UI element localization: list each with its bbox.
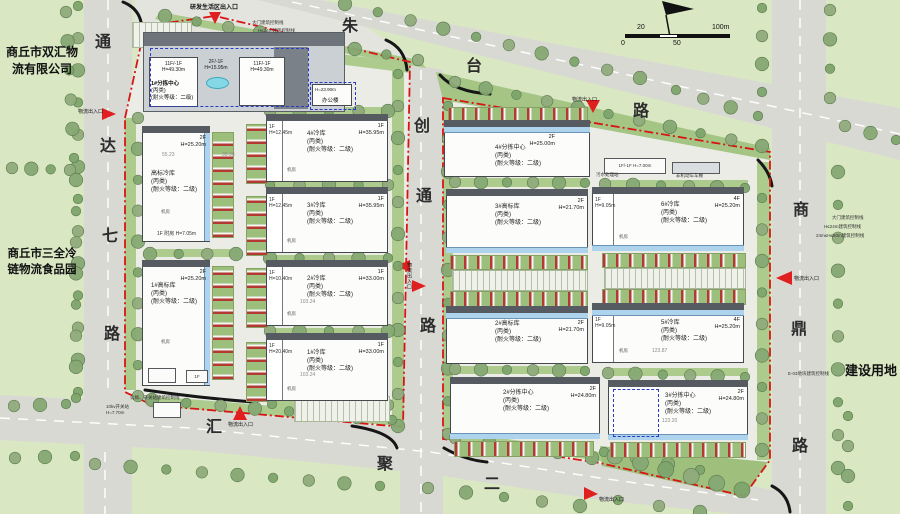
roof-shadow <box>266 333 388 340</box>
dimension: 123.87 <box>652 348 667 354</box>
loading-dock-apron <box>246 124 268 184</box>
roof-shadow <box>266 187 388 194</box>
building-gaobiao-cold-storage: 2FH=25.20m 高标冷库 (丙类) (耐火等级：二级) 机房 1F 附房 … <box>142 126 210 242</box>
building-2-cold-storage: 1FH=10.40m 1FH=33.00m 2#冷库 (丙类) (耐火等级：二级… <box>266 260 388 326</box>
scale-label-100m: 100m <box>712 24 730 31</box>
loading-dock-apron <box>450 255 588 270</box>
road-name-shangding: 路 <box>792 432 808 456</box>
tower-floors: 11F/-1F <box>165 61 182 67</box>
tower-height: H=49.30m <box>250 67 273 73</box>
substation-label: 10kv开关站 H=7.70m <box>106 404 129 415</box>
phase-boundary <box>613 389 659 437</box>
bike-shed-label: 非机动车车棚 <box>676 173 703 179</box>
note-h24-ctrl: H≤24m建筑控制线 <box>824 224 861 230</box>
entrance-logistics-north: 物流出入口 <box>572 96 597 103</box>
building-label: 2#高标库 (丙类) (耐火等级：二级) <box>495 321 541 344</box>
office-height: H=23.90m <box>315 87 336 92</box>
scale-bar-segment <box>625 34 659 38</box>
dock-canopy <box>446 313 588 319</box>
machine-room-label: 机房 <box>287 167 296 173</box>
entrance-logistics-west: 物流出入口 <box>78 108 103 115</box>
road-name-tongda: 通 <box>95 28 111 52</box>
building-3-gaobiao-warehouse: 2FH=21.70m 3#高标库 (丙类) (耐火等级：二级) <box>446 189 588 253</box>
loading-dock-apron <box>212 132 234 238</box>
building-4-sorting-center: 2FH=25.00m 4#分拣中心 (丙类) (耐火等级：二级) <box>444 120 590 177</box>
roof-shadow <box>450 377 600 384</box>
dimension: 123.20 <box>662 418 677 424</box>
note-h24-ctrl-top: H≤24m建筑控制线 <box>258 28 295 34</box>
scale-bar-segment <box>659 34 678 38</box>
podium-roof <box>144 33 344 46</box>
gatehouse: 1F <box>186 370 208 383</box>
dimension: 103.24 <box>300 299 315 305</box>
note-wc-ctrl: 公厕、开关站建筑控制线 <box>130 395 180 401</box>
machine-room-label: 机房 <box>619 234 628 240</box>
road-name-zhutai: 台 <box>466 52 482 76</box>
parking-lot <box>604 268 746 289</box>
roof-shadow <box>446 189 588 196</box>
roof-shadow <box>142 126 210 133</box>
sewage-label: 污水处理站 <box>596 172 619 178</box>
roof-shadow <box>266 114 388 121</box>
machine-room-label: 机房 <box>287 238 296 244</box>
building-4-cold-storage: 1FH=12.45m 1FH=35.95m 4#冷库 (丙类) (耐火等级：二级… <box>266 114 388 182</box>
dock-canopy <box>204 133 210 241</box>
loading-dock-apron <box>454 441 594 457</box>
scale-label-0: 0 <box>621 40 625 47</box>
building-label: 5#冷库 (丙类) (耐火等级：二级) <box>661 320 707 343</box>
roof-shadow <box>592 303 744 310</box>
office-building: H=23.90m 办公楼 <box>312 84 352 106</box>
building-label: 4#冷库 (丙类) (耐火等级：二级) <box>307 131 353 154</box>
road-name-chuangtong: 创 <box>414 112 430 136</box>
entrance-logistics-southeast: 物流出入口 <box>599 496 624 503</box>
road-name-chuangtong: 路 <box>420 312 436 336</box>
dock-canopy <box>444 127 590 133</box>
entrance-research-living: 研发生活区出入口 <box>190 2 238 11</box>
dock-canopy <box>204 267 210 385</box>
roof-shadow <box>266 260 388 267</box>
tower-height: H=49.30m <box>162 67 185 73</box>
dock-canopy <box>592 245 744 251</box>
building-label: 高标冷库 (丙类) (耐火等级：二级) <box>151 171 197 194</box>
parking-lot <box>452 270 588 291</box>
building-label: 3#冷库 (丙类) (耐火等级：二级) <box>307 203 353 226</box>
pond <box>206 77 229 89</box>
building-label: 3#高标库 (丙类) (耐火等级：二级) <box>495 204 541 227</box>
machine-room-label: 机房 <box>619 348 628 354</box>
road-name-shangding: 商 <box>793 196 809 220</box>
entrance-logistics-center: 物流出入口 <box>406 262 413 290</box>
office-label: 办公楼 <box>322 96 339 104</box>
road-name-huiju: 二 <box>484 470 500 494</box>
building-label: 2#分拣中心 (丙类) (耐火等级：二级) <box>503 390 549 413</box>
site-plan: 11F/-1F H=49.30m 11F/-1F H=49.30m 2F/-1F… <box>0 0 900 514</box>
dock-canopy <box>446 247 588 253</box>
road-name-zhutai: 朱 <box>342 12 358 36</box>
note-gate-ctrl: 大门建筑控制线 <box>832 215 864 221</box>
dimension: 39.30 <box>222 152 235 158</box>
building-1-cold-storage: 1FH=20.40m 1FH=33.00m 1#冷库 (丙类) (耐火等级：二级… <box>266 333 388 401</box>
building-label: 3#分拣中心 (丙类) (耐火等级：二级) <box>665 393 711 416</box>
roof-shadow <box>608 380 748 387</box>
machine-room-label: 机房 <box>287 311 296 317</box>
dock-canopy <box>592 310 744 316</box>
dimension: 103.24 <box>300 372 315 378</box>
entrance-logistics-southwest: 物流出入口 <box>228 421 253 428</box>
building-label: 1#高标库 (丙类) (耐火等级：二级) <box>151 283 197 306</box>
building-3-sorting-center: 2FH=24.80m 3#分拣中心 (丙类) (耐火等级：二级) <box>608 380 748 440</box>
label-company-sanquan: 商丘市三全冷链物流食品园 <box>4 246 80 278</box>
scale-bar-segment <box>678 34 730 38</box>
road-name-huiju: 聚 <box>377 450 393 474</box>
building-3-cold-storage: 1FH=12.45m 1FH=35.95m 3#冷库 (丙类) (耐火等级：二级… <box>266 187 388 253</box>
building-2-sorting-center: 2FH=24.80m 2#分拣中心 (丙类) (耐火等级：二级) <box>450 377 600 439</box>
road-name-shangding: 鼎 <box>791 315 807 339</box>
note-h2450-ctrl: 24m≤H≤50m建筑控制线 <box>816 233 864 239</box>
roof-shadow <box>444 120 590 127</box>
roof-shadow <box>142 260 210 267</box>
loading-dock-apron <box>610 442 746 458</box>
dock-canopy <box>608 434 748 440</box>
label-construction-land: 建设用地 <box>843 362 899 380</box>
loading-dock-apron <box>246 196 268 256</box>
floors: 2F <box>200 135 206 141</box>
label-company-shuanghui: 商丘市双汇物流有限公司 <box>5 44 79 78</box>
loading-dock-apron <box>246 342 268 402</box>
building-label: 6#冷库 (丙类) (耐火等级：二级) <box>661 202 707 225</box>
building-label: 4#分拣中心 (丙类) (耐火等级：二级) <box>495 145 541 168</box>
dimension: 55.23 <box>162 152 175 158</box>
loading-dock-apron <box>450 291 588 307</box>
podium-spec: 2F/-1F H=15.95m <box>197 59 235 71</box>
entrance-logistics-east: 物流出入口 <box>794 275 819 282</box>
machine-room-label: 机房 <box>161 339 170 345</box>
road-name-tongda: 达 <box>100 132 116 156</box>
machine-room-label: 机房 <box>161 209 170 215</box>
note-gate-ctrl-top: 大门建筑控制线 <box>252 20 284 26</box>
loading-dock-apron <box>212 266 234 380</box>
loading-dock-apron <box>246 268 268 328</box>
scale-label-20: 20 <box>637 24 645 31</box>
roof-shadow <box>446 306 588 313</box>
complex-label: 1#分拣中心 (丙类) (耐火等级：二级) <box>151 81 193 102</box>
height: H=25.20m <box>180 142 206 148</box>
building-2-gaobiao-warehouse: 2FH=21.70m 2#高标库 (丙类) (耐火等级：二级) <box>446 306 588 364</box>
road-name-tongda: 路 <box>104 320 120 344</box>
loading-dock-apron <box>602 253 746 268</box>
trash-station <box>148 368 176 383</box>
scale-label-50: 50 <box>673 40 681 47</box>
building-label: 2#冷库 (丙类) (耐火等级：二级) <box>307 276 353 299</box>
roof-shadow <box>592 187 744 194</box>
road-name-tongda: 七 <box>102 222 118 246</box>
building-6-cold-storage: 1FH=9.05m 4FH=25.20m 6#冷库 (丙类) (耐火等级：二级)… <box>592 187 744 251</box>
dock-canopy <box>450 433 600 439</box>
note-e03-ctrl: E-03地块建筑控制线 <box>788 371 829 377</box>
building-5-cold-storage: 1FH=9.05m 4FH=25.20m 5#冷库 (丙类) (耐火等级：二级)… <box>592 303 744 363</box>
substation <box>153 402 181 418</box>
road-name-zhutai: 路 <box>633 97 649 121</box>
building-label: 1#冷库 (丙类) (耐火等级：二级) <box>307 350 353 373</box>
machine-room-label: 机房 <box>287 386 296 392</box>
road-name-chuangtong: 通 <box>416 182 432 206</box>
road-name-huiju: 汇 <box>206 413 222 437</box>
tower-east: 11F/-1F H=49.30m <box>239 57 285 106</box>
tower-floors: 11F/-1F <box>253 61 270 67</box>
